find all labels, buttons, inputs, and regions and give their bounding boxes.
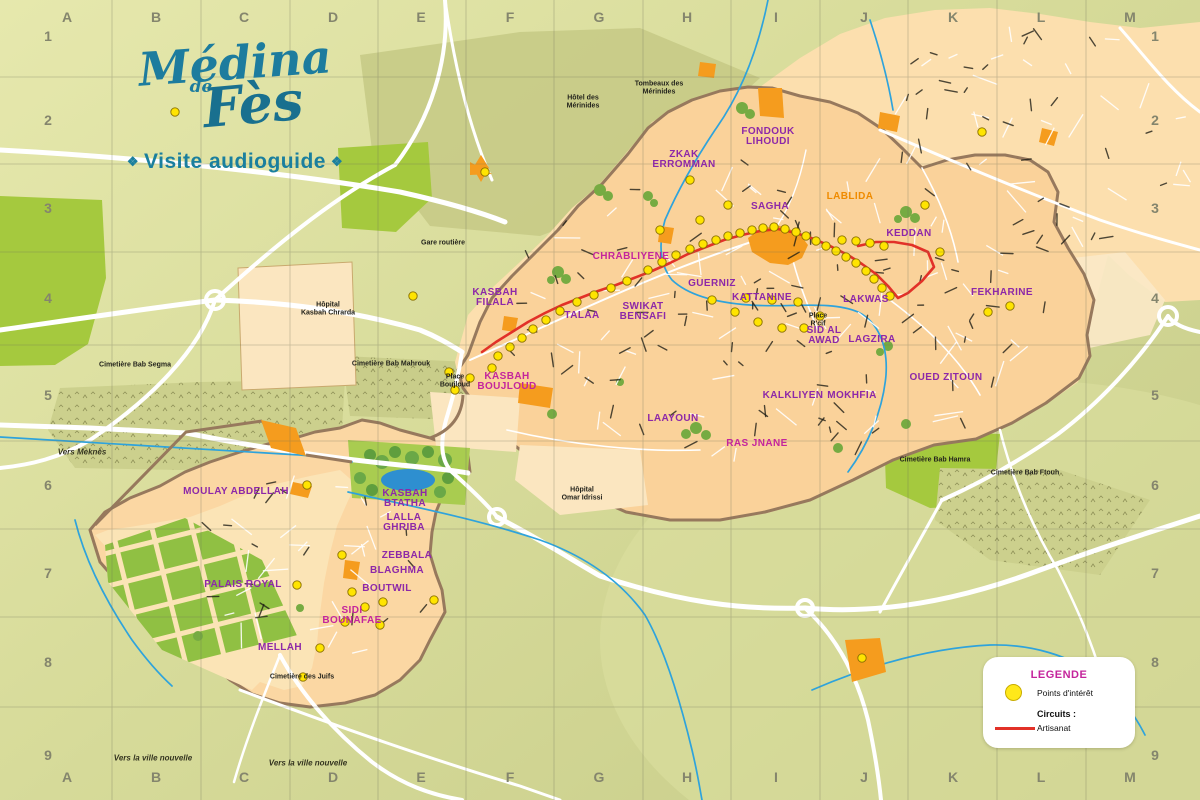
poi-marker: [451, 386, 459, 394]
poi-marker: [341, 618, 349, 626]
ornament-left: ❖: [122, 154, 144, 169]
poi-marker: [802, 232, 810, 240]
subtitle-text: Visite audioguide: [144, 150, 326, 173]
fes-medina-map: Médina de Fès ❖Visite audioguide❖ LEGEND…: [0, 0, 1200, 800]
poi-marker: [870, 275, 878, 283]
poi-marker: [699, 240, 707, 248]
poi-marker: [529, 325, 537, 333]
poi-marker: [303, 481, 311, 489]
poi-marker: [778, 324, 786, 332]
poi-marker: [518, 334, 526, 342]
poi-marker: [361, 603, 369, 611]
poi-marker: [348, 588, 356, 596]
poi-marker: [842, 253, 850, 261]
artisanat-legend-label: Artisanat: [1037, 723, 1071, 733]
circuits-heading: Circuits :: [1037, 709, 1076, 719]
poi-marker: [338, 551, 346, 559]
ornament-right: ❖: [326, 154, 348, 169]
poi-marker: [430, 596, 438, 604]
poi-marker: [748, 226, 756, 234]
poi-marker: [686, 176, 694, 184]
poi-marker: [445, 368, 453, 376]
map-title: Médina de Fès ❖Visite audioguide❖: [105, 40, 365, 174]
poi-marker: [409, 292, 417, 300]
poi-marker: [607, 284, 615, 292]
poi-marker: [316, 644, 324, 652]
poi-legend-label: Points d'intérêt: [1037, 688, 1093, 698]
poi-marker: [299, 673, 307, 681]
poi-marker: [542, 316, 550, 324]
poi-marker: [759, 224, 767, 232]
poi-marker: [506, 343, 514, 351]
poi-marker: [794, 298, 802, 306]
poi-marker: [812, 237, 820, 245]
poi-marker: [488, 364, 496, 372]
poi-marker: [481, 168, 489, 176]
poi-marker: [293, 581, 301, 589]
poi-marker: [822, 242, 830, 250]
poi-marker: [862, 267, 870, 275]
poi-marker: [696, 216, 704, 224]
poi-marker: [984, 308, 992, 316]
poi-marker: [466, 374, 474, 382]
poi-marker: [1006, 302, 1014, 310]
poi-marker: [921, 201, 929, 209]
poi-marker: [800, 324, 808, 332]
poi-marker: [866, 239, 874, 247]
legend-panel: LEGENDE Points d'intérêt Circuits : Arti…: [983, 657, 1135, 748]
poi-marker: [656, 226, 664, 234]
poi-marker: [852, 237, 860, 245]
poi-marker: [886, 292, 894, 300]
poi-marker: [494, 352, 502, 360]
poi-marker: [852, 259, 860, 267]
poi-marker: [832, 247, 840, 255]
title-subtitle: ❖Visite audioguide❖: [105, 150, 365, 174]
poi-marker: [878, 284, 886, 292]
poi-marker: [792, 228, 800, 236]
poi-marker: [644, 266, 652, 274]
poi-legend-icon: [1005, 684, 1022, 701]
poi-marker: [768, 296, 776, 304]
poi-marker: [754, 318, 762, 326]
poi-marker: [731, 308, 739, 316]
poi-marker: [880, 242, 888, 250]
poi-marker: [379, 598, 387, 606]
poi-marker: [858, 654, 866, 662]
poi-marker: [590, 291, 598, 299]
poi-marker: [712, 236, 720, 244]
poi-marker: [736, 229, 744, 237]
legend-title: LEGENDE: [983, 669, 1135, 681]
poi-marker: [376, 621, 384, 629]
poi-marker: [556, 307, 564, 315]
poi-marker: [623, 277, 631, 285]
poi-marker: [781, 225, 789, 233]
poi-marker: [708, 296, 716, 304]
poi-marker: [770, 223, 778, 231]
poi-marker: [978, 128, 986, 136]
poi-marker: [838, 236, 846, 244]
artisanat-line-icon: [995, 727, 1035, 730]
poi-marker: [742, 294, 750, 302]
poi-marker: [573, 298, 581, 306]
poi-marker: [658, 258, 666, 266]
